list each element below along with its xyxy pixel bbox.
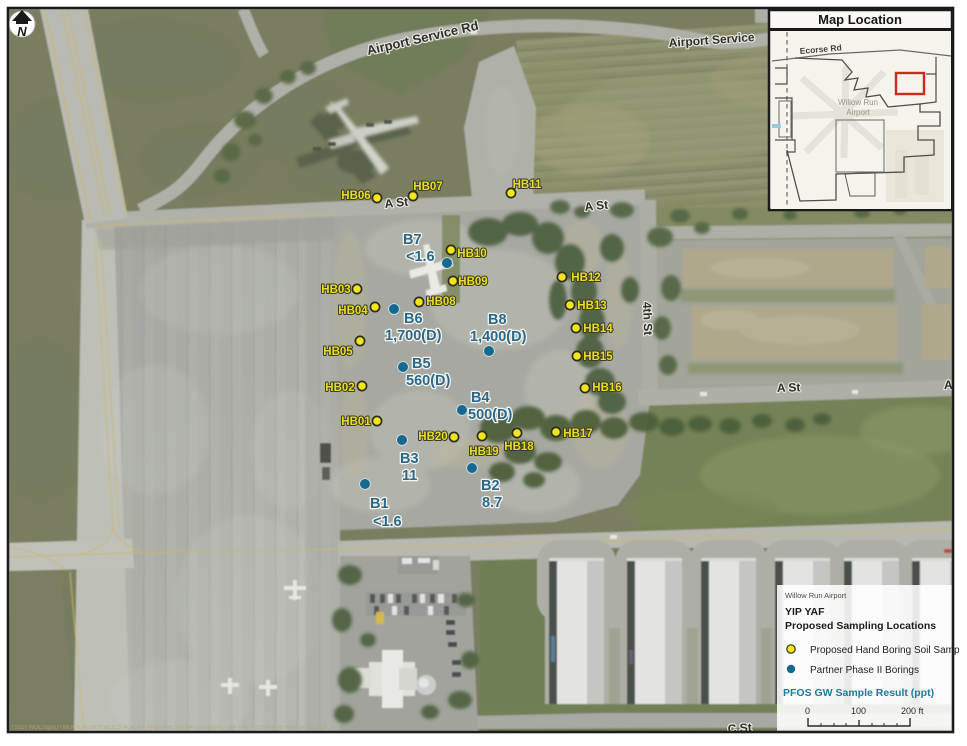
svg-text:560(D): 560(D)	[406, 373, 450, 389]
svg-text:HB06: HB06	[341, 190, 370, 202]
svg-text:1,400(D): 1,400(D)	[470, 329, 527, 345]
svg-text:A St: A St	[384, 195, 409, 211]
svg-text:<1.6: <1.6	[406, 249, 435, 265]
svg-text:HB17: HB17	[563, 428, 592, 440]
svg-text:HB18: HB18	[504, 441, 534, 453]
svg-text:4th St: 4th St	[640, 302, 655, 336]
svg-text:HB15: HB15	[583, 351, 613, 363]
svg-text:B8: B8	[488, 312, 507, 328]
svg-text:Willow Run Airport: Willow Run Airport	[785, 591, 847, 600]
svg-text:HB07: HB07	[413, 181, 442, 193]
svg-text:HB16: HB16	[592, 382, 621, 394]
svg-text:Willow Run: Willow Run	[838, 98, 878, 107]
svg-text:B4: B4	[471, 390, 490, 406]
svg-text:1,700(D): 1,700(D)	[385, 328, 442, 344]
svg-text:Proposed Hand Boring Soil Samp: Proposed Hand Boring Soil Samp	[810, 645, 960, 656]
svg-text:B2: B2	[481, 478, 500, 494]
svg-text:B6: B6	[404, 311, 423, 327]
svg-text:<1.6: <1.6	[373, 514, 402, 530]
svg-text:PFOS GW Sample Result (ppt): PFOS GW Sample Result (ppt)	[783, 687, 934, 699]
svg-text:HB10: HB10	[457, 248, 486, 260]
svg-text:Airport: Airport	[846, 108, 870, 117]
svg-text:B1: B1	[370, 496, 389, 512]
svg-text:YIP YAF: YIP YAF	[785, 606, 825, 618]
svg-text:500(D): 500(D)	[468, 407, 512, 423]
svg-text:11: 11	[402, 468, 417, 484]
svg-text:HB03: HB03	[321, 284, 350, 296]
svg-text:B5: B5	[412, 356, 431, 372]
svg-text:0: 0	[805, 706, 810, 716]
svg-text:100: 100	[851, 706, 866, 716]
svg-text:HB04: HB04	[338, 305, 368, 317]
svg-text:HB19: HB19	[469, 446, 498, 458]
svg-text:HB05: HB05	[323, 346, 353, 358]
svg-text:N: N	[17, 24, 27, 39]
svg-text:Map Location: Map Location	[818, 12, 902, 27]
svg-text:HB09: HB09	[458, 276, 487, 288]
svg-text:Partner Phase II Borings: Partner Phase II Borings	[810, 665, 919, 676]
svg-text:TS\DTWDCSgsiDTWDCS AGPOSWDCS: TS\DTWDCSgsiDTWDCS AGPOSWDCS AGP.arc Pro…	[11, 725, 327, 731]
svg-text:A: A	[944, 378, 953, 392]
svg-text:B7: B7	[403, 232, 422, 248]
svg-text:HB14: HB14	[583, 323, 613, 335]
svg-text:HB08: HB08	[426, 296, 456, 308]
svg-text:Proposed Sampling Locations: Proposed Sampling Locations	[785, 620, 936, 632]
svg-text:HB02: HB02	[325, 382, 354, 394]
svg-text:HB20: HB20	[418, 431, 447, 443]
svg-text:HB11: HB11	[513, 179, 542, 191]
svg-text:HB12: HB12	[571, 272, 600, 284]
svg-text:A St: A St	[584, 198, 609, 214]
svg-text:8.7: 8.7	[482, 495, 502, 511]
svg-text:B3: B3	[400, 451, 419, 467]
svg-text:HB13: HB13	[577, 300, 606, 312]
svg-text:200 ft: 200 ft	[901, 706, 924, 716]
svg-text:HB01: HB01	[341, 416, 371, 428]
svg-text:A St: A St	[777, 380, 801, 395]
